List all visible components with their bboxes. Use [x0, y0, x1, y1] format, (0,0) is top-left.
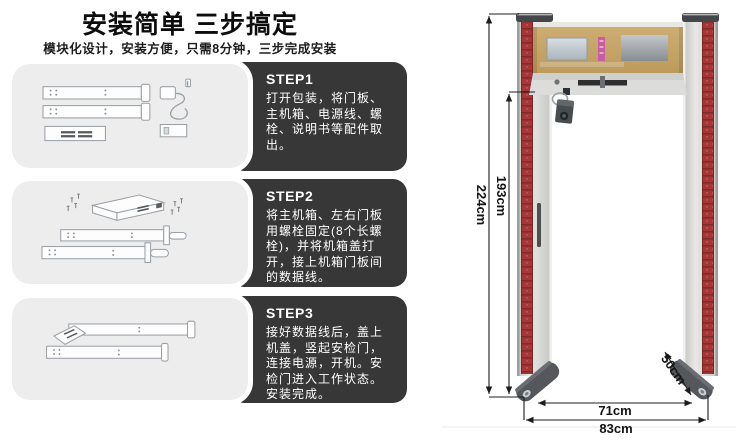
step2-description: 将主机箱、左右门板用螺栓固定(8个长螺栓)，并将机箱盖打开，接上机箱门板间的数据…: [266, 208, 389, 286]
step2-label: STEP2: [266, 188, 389, 204]
step1-label: STEP1: [266, 71, 389, 87]
inner-width-label: 71cm: [598, 403, 631, 418]
left-led-strip: [521, 22, 533, 374]
step1-unpacked-parts-illustration: [12, 64, 248, 168]
side-panel: [621, 35, 668, 61]
step3-label: STEP3: [266, 305, 389, 321]
step1-description: 打开包装，将门板、主机箱、电源线、螺栓、说明书等配件取出。: [266, 91, 389, 153]
step2-bolt-assembly-illustration: [12, 181, 248, 284]
steps-section: 安装简单 三步搞定 模块化设计，安装方便，只需8分钟，三步完成安装 STEP1 …: [0, 0, 430, 442]
outer-width-label: 83cm: [599, 421, 632, 436]
display-screen: [547, 38, 587, 60]
step-row-3: STEP3 接好数据线后，盖上机盖，竖起安检门，连接电源，开机。安检门进入工作状…: [0, 296, 430, 403]
outer-height-label: 224cm: [474, 185, 489, 225]
step2-illustration-card: [12, 181, 248, 284]
sensor-dot: [554, 79, 559, 84]
right-led-strip: [702, 22, 714, 374]
page-subtitle: 模块化设计，安装方便，只需8分钟，三步完成安装: [0, 38, 380, 57]
vent-slot: [605, 80, 627, 86]
product-dimensions-figure: 224cm 193cm 71cm 83cm 50cm: [440, 0, 738, 442]
connector-slot: [537, 203, 541, 247]
right-pillar: [682, 13, 719, 376]
step-row-1: STEP1 打开包装，将门板、主机箱、电源线、螺栓、说明书等配件取出。: [0, 62, 430, 171]
step3-description: 接好数据线后，盖上机盖，竖起安检门，连接电源，开机。安检门进入工作状态。安装完成…: [266, 325, 389, 403]
step3-assembled-gate-illustration: [12, 298, 248, 400]
step2-text-panel: STEP2 将主机箱、左右门板用螺栓固定(8个长螺栓)，并将机箱盖打开，接上机箱…: [230, 179, 407, 287]
page-title: 安装简单 三步搞定: [0, 5, 380, 41]
step3-illustration-card: [12, 298, 248, 400]
installation-infographic: 安装简单 三步搞定 模块化设计，安装方便，只需8分钟，三步完成安装 STEP1 …: [0, 0, 738, 442]
step3-text-panel: STEP3 接好数据线后，盖上机盖，竖起安检门，连接电源，开机。安检门进入工作状…: [230, 296, 407, 403]
step1-text-panel: STEP1 打开包装，将门板、主机箱、电源线、螺栓、说明书等配件取出。: [230, 62, 407, 171]
head-unit: [529, 22, 687, 95]
metal-detector-figure: 224cm 193cm 71cm 83cm 50cm: [440, 0, 738, 442]
vent-slot: [578, 80, 600, 86]
step1-illustration-card: [12, 64, 248, 168]
inner-height-label: 193cm: [494, 176, 509, 216]
step-row-2: STEP2 将主机箱、左右门板用螺栓固定(8个长螺栓)，并将机箱盖打开，接上机箱…: [0, 179, 430, 287]
